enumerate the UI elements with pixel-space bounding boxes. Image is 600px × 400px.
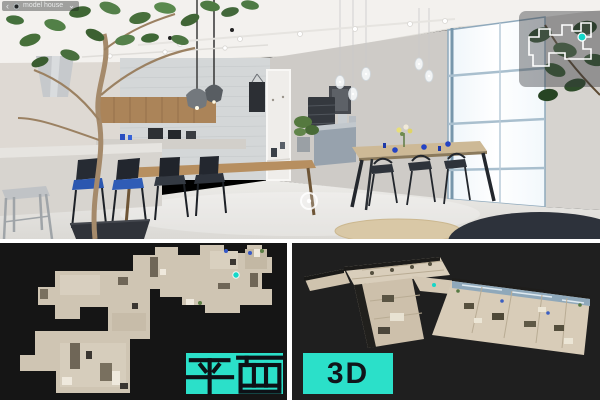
dollhouse-label-text: 3D (327, 357, 369, 391)
dollhouse-label[interactable]: 3D (303, 353, 393, 394)
tour-viewer: ‹ model house ⌄ (0, 0, 600, 400)
minimap-outline (529, 23, 591, 66)
back-icon[interactable]: ‹ (6, 1, 9, 11)
showroom-scene (0, 0, 600, 239)
round-rug (335, 219, 461, 239)
space-selector[interactable]: ‹ model house ⌄ (2, 1, 79, 11)
position-marker-icon (578, 33, 586, 41)
chevron-down-icon[interactable]: ⌄ (68, 1, 75, 11)
nav-ring[interactable] (301, 193, 317, 209)
minimap[interactable] (519, 11, 600, 87)
dollhouse-view[interactable]: 3D (292, 243, 600, 400)
dollhouse-structure (304, 257, 590, 355)
kanji-heimen (186, 295, 283, 400)
view-switcher: 平面 (0, 239, 600, 400)
floor-plan-label[interactable]: 平面 (186, 353, 283, 394)
space-badge-icon (13, 3, 20, 10)
floor-plan-view[interactable]: 平面 (0, 243, 287, 400)
panorama-view[interactable]: ‹ model house ⌄ (0, 0, 600, 239)
space-title: model house (23, 1, 63, 11)
position-marker-icon (233, 272, 239, 278)
